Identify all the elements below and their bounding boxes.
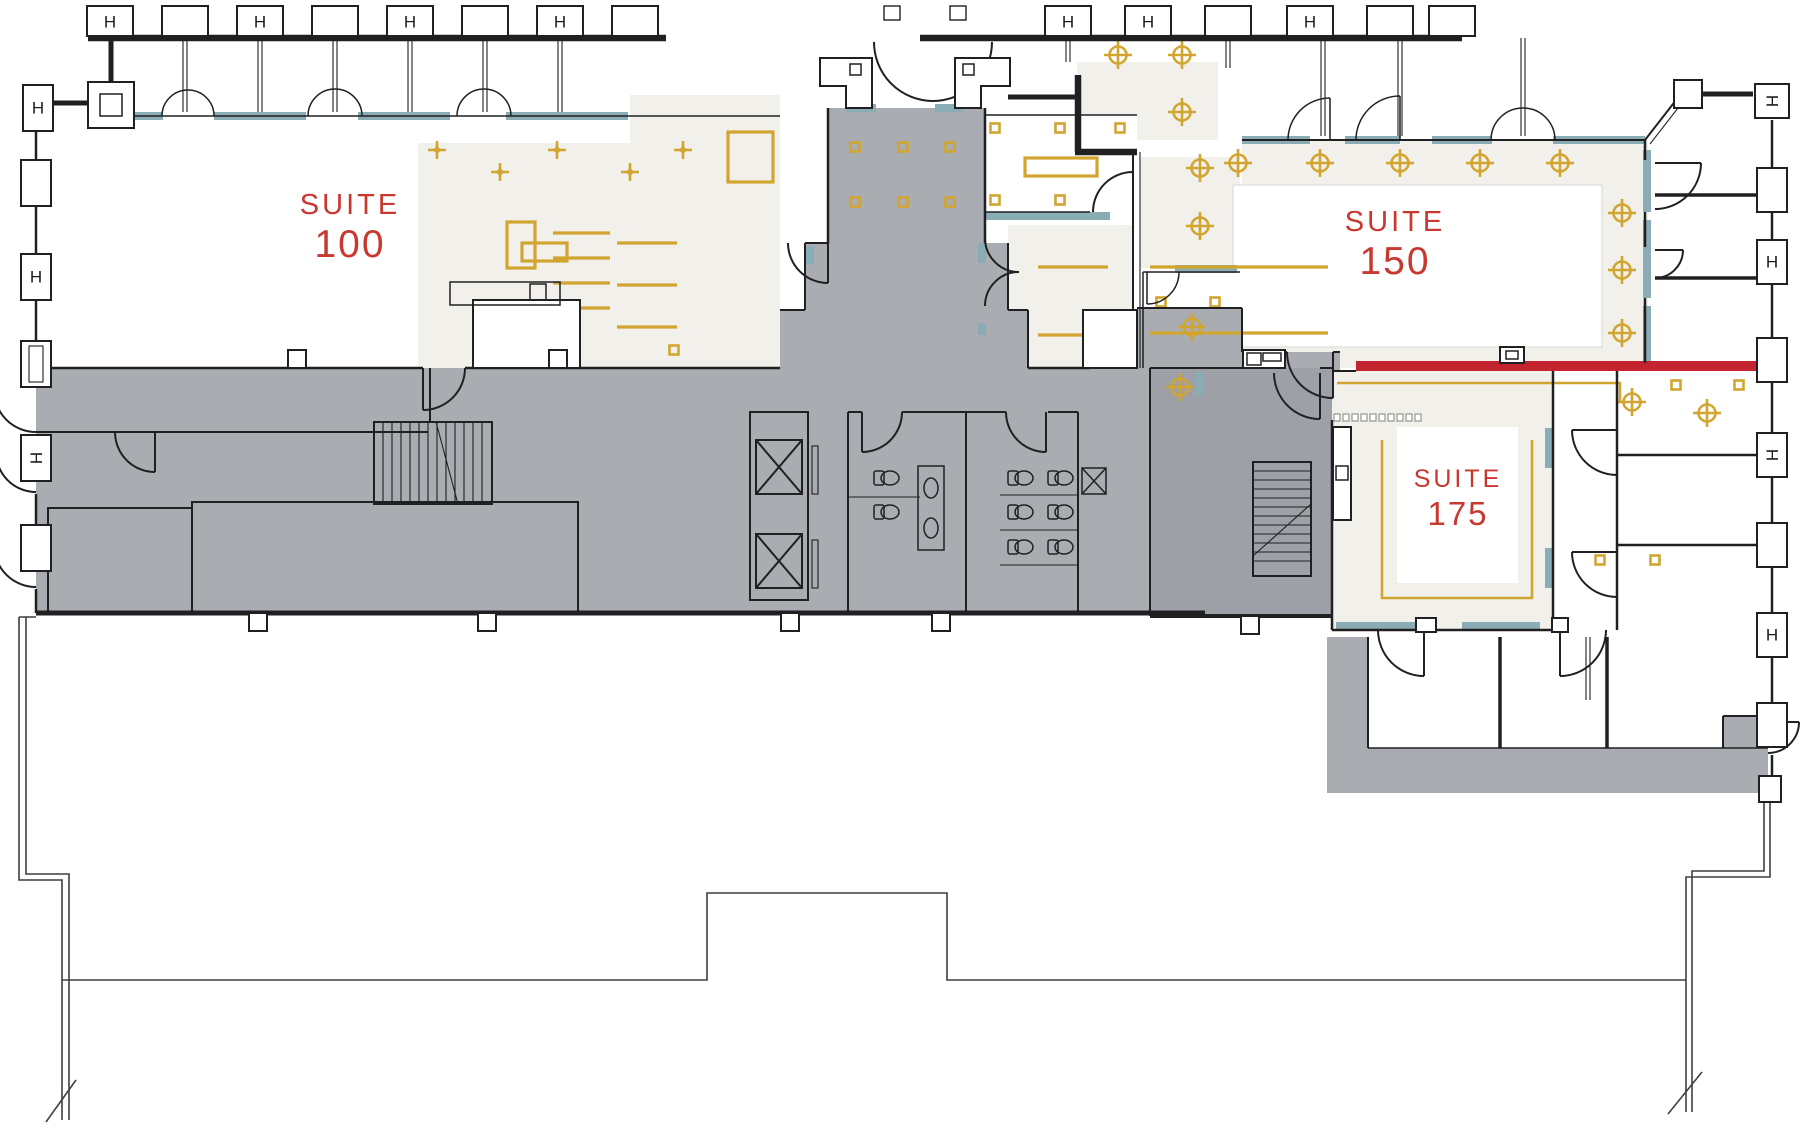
svg-text:H: H	[1062, 13, 1074, 32]
exit-arrow-left	[46, 1080, 76, 1122]
suite-100-number: 100	[300, 222, 400, 268]
stair-core-block	[1150, 368, 1332, 618]
svg-text:H: H	[30, 268, 42, 287]
svg-text:H: H	[554, 13, 566, 32]
suite-100-name: SUITE	[300, 188, 400, 222]
suite-175-number: 175	[1414, 494, 1503, 533]
svg-text:H: H	[1763, 95, 1782, 107]
suite-175-label: SUITE 175	[1414, 465, 1503, 533]
svg-text:H: H	[254, 13, 266, 32]
floor-plan: H H H H H H H H H H H H H H	[0, 0, 1800, 1128]
svg-text:H: H	[1766, 253, 1778, 272]
main-entry	[820, 6, 1010, 108]
exit-arrow-right	[1668, 1072, 1702, 1114]
suite-175-name: SUITE	[1414, 465, 1503, 495]
suite-150-number: 150	[1345, 239, 1445, 285]
svg-text:H: H	[1304, 13, 1316, 32]
site-outline	[19, 617, 1770, 1122]
svg-text:H: H	[27, 452, 46, 464]
svg-text:H: H	[1142, 13, 1154, 32]
suite-100-label: SUITE 100	[300, 188, 400, 268]
svg-text:H: H	[1766, 626, 1778, 645]
floor-plan-drawing: H H H H H H H H H H H H H H	[0, 0, 1800, 1128]
svg-text:H: H	[404, 13, 416, 32]
svg-text:H: H	[104, 13, 116, 32]
svg-text:H: H	[1763, 449, 1782, 461]
suite-150-label: SUITE 150	[1345, 205, 1445, 285]
svg-text:H: H	[32, 99, 44, 118]
suite-150-name: SUITE	[1345, 205, 1445, 239]
